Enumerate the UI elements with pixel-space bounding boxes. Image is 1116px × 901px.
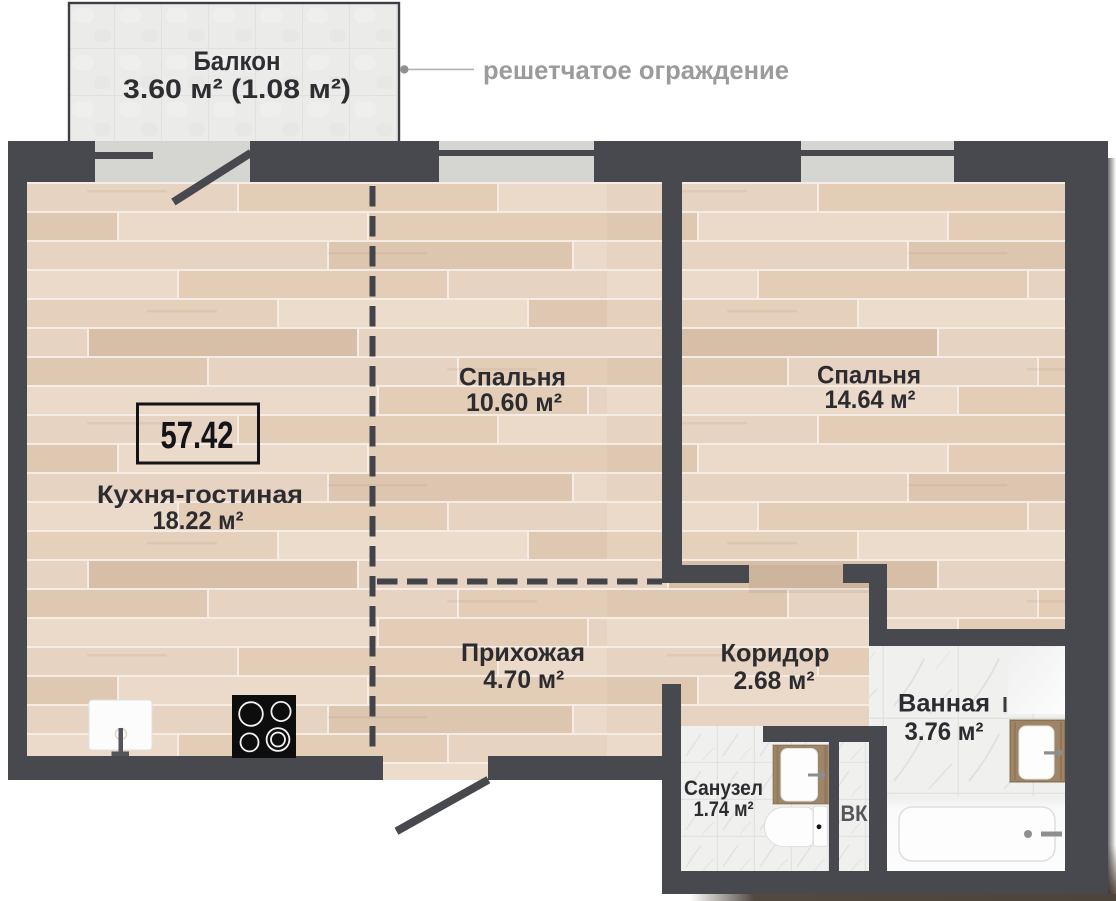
svg-text:4.70 м²: 4.70 м² [483, 666, 564, 694]
svg-text:Прихожая: Прихожая [461, 639, 585, 667]
svg-text:18.22 м²: 18.22 м² [153, 507, 244, 535]
svg-text:ВК: ВК [841, 801, 869, 826]
svg-text:3.60 м² (1.08 м²): 3.60 м² (1.08 м²) [123, 74, 351, 104]
svg-text:10.60 м²: 10.60 м² [466, 389, 562, 417]
svg-text:Коридор: Коридор [721, 640, 830, 668]
svg-text:1.74 м²: 1.74 м² [694, 798, 754, 821]
svg-text:57.42: 57.42 [161, 415, 234, 457]
svg-text:14.64 м²: 14.64 м² [825, 386, 916, 414]
svg-text:2.68 м²: 2.68 м² [734, 667, 815, 695]
svg-text:Балкон: Балкон [194, 46, 281, 76]
svg-text:Ванная: Ванная [898, 690, 990, 718]
svg-text:Санузел: Санузел [684, 777, 763, 800]
svg-text:решетчатое ограждение: решетчатое ограждение [483, 55, 789, 85]
svg-text:Кухня-гостиная: Кухня-гостиная [97, 481, 303, 509]
svg-text:Спальня: Спальня [459, 364, 566, 392]
svg-text:3.76 м²: 3.76 м² [905, 718, 984, 746]
